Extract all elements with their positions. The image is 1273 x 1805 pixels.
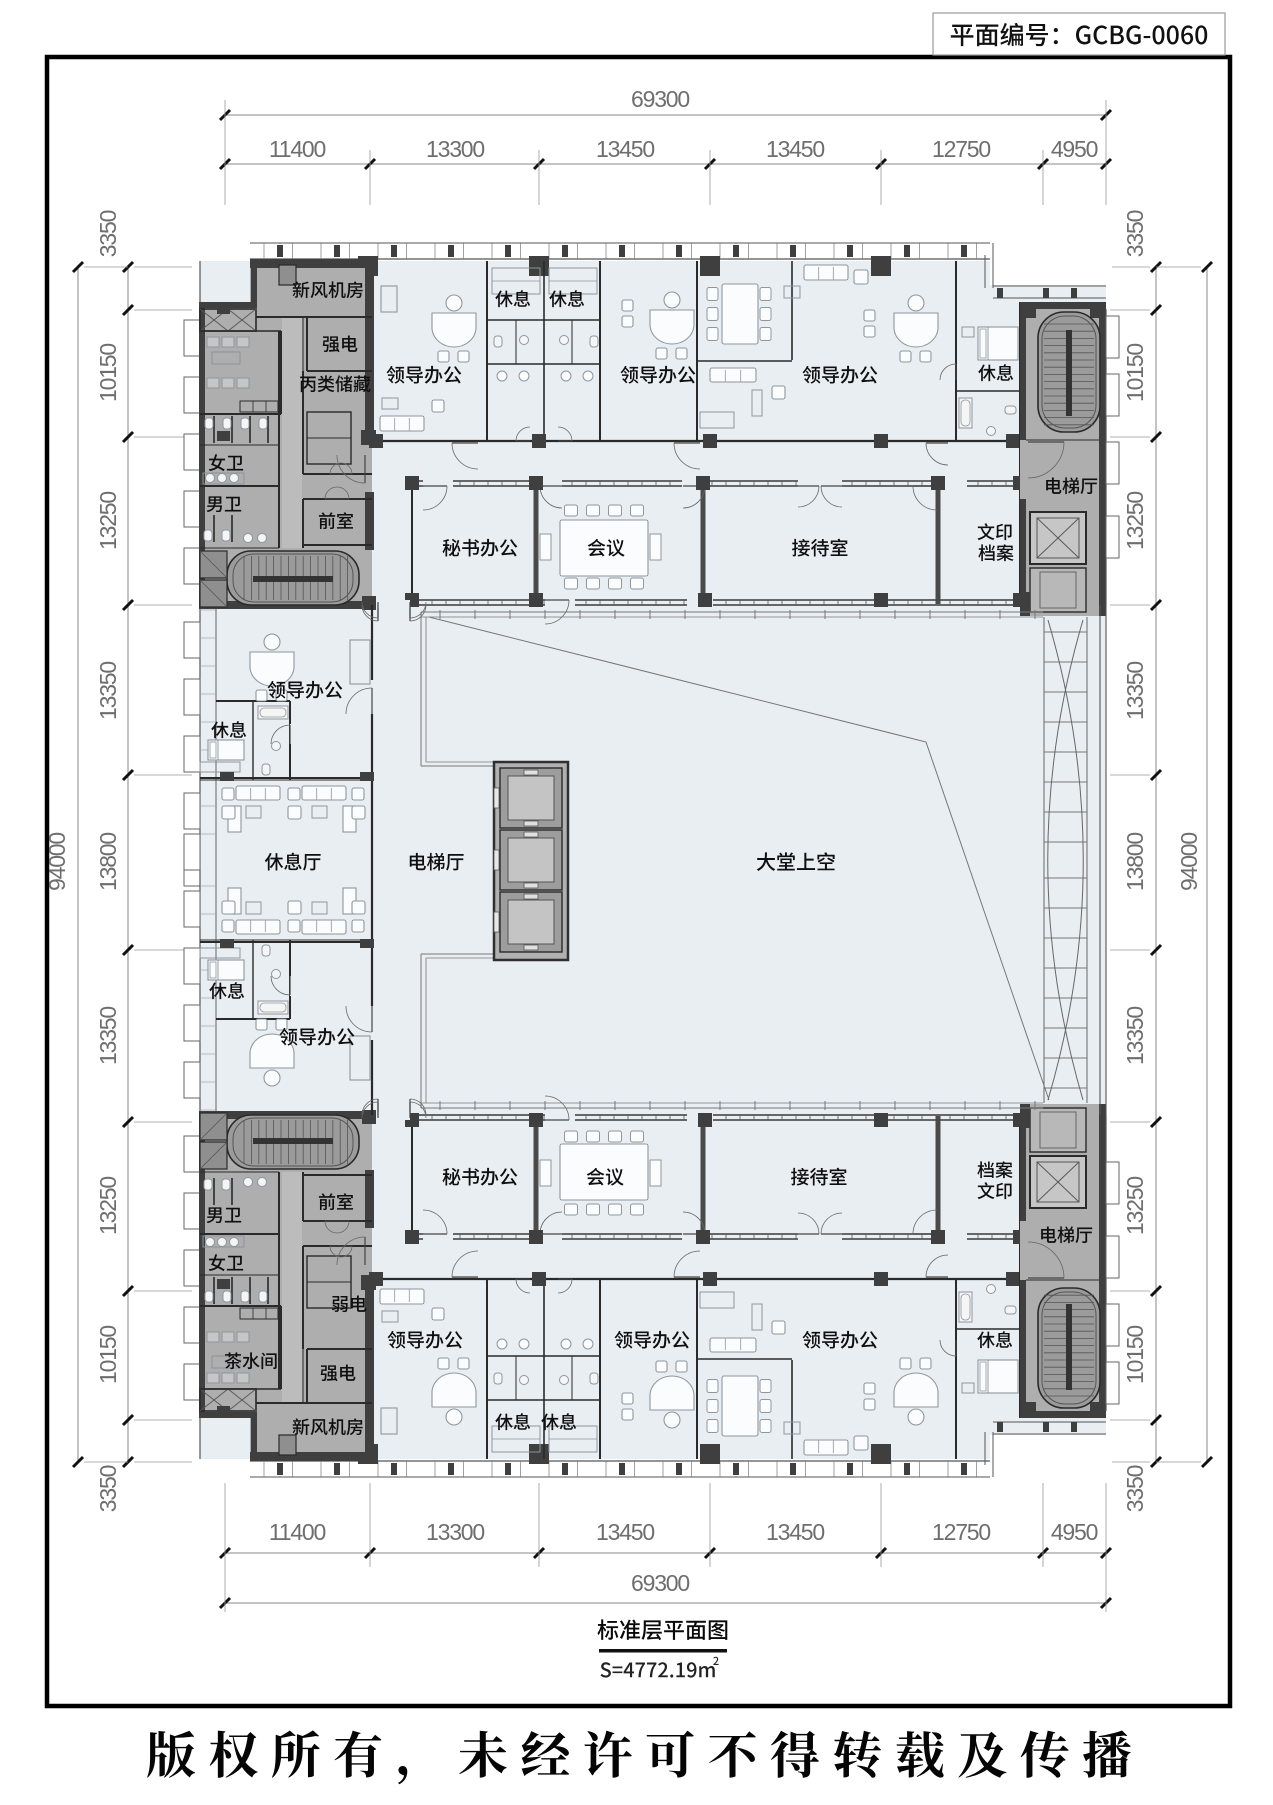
svg-text:13450: 13450 bbox=[766, 136, 824, 162]
svg-text:10150: 10150 bbox=[1122, 1326, 1148, 1384]
svg-text:69300: 69300 bbox=[631, 86, 689, 112]
svg-text:13300: 13300 bbox=[426, 136, 484, 162]
svg-text:12750: 12750 bbox=[932, 1519, 990, 1545]
svg-text:10150: 10150 bbox=[95, 1326, 121, 1384]
svg-text:10150: 10150 bbox=[1122, 344, 1148, 402]
svg-text:12750: 12750 bbox=[932, 136, 990, 162]
svg-text:13250: 13250 bbox=[95, 1177, 121, 1235]
svg-text:13800: 13800 bbox=[1122, 833, 1148, 891]
svg-text:3350: 3350 bbox=[95, 1465, 121, 1512]
svg-text:13350: 13350 bbox=[1122, 662, 1148, 720]
svg-text:4950: 4950 bbox=[1051, 136, 1098, 162]
svg-text:13250: 13250 bbox=[1122, 492, 1148, 550]
svg-text:13350: 13350 bbox=[95, 662, 121, 720]
svg-text:13250: 13250 bbox=[1122, 1177, 1148, 1235]
svg-text:13450: 13450 bbox=[766, 1519, 824, 1545]
svg-text:13800: 13800 bbox=[95, 833, 121, 891]
svg-text:11400: 11400 bbox=[269, 1519, 326, 1545]
svg-text:69300: 69300 bbox=[631, 1570, 689, 1596]
svg-text:10150: 10150 bbox=[95, 344, 121, 402]
svg-text:13450: 13450 bbox=[596, 1519, 654, 1545]
svg-text:94000: 94000 bbox=[1176, 833, 1202, 891]
svg-text:13350: 13350 bbox=[1122, 1007, 1148, 1065]
svg-text:3350: 3350 bbox=[95, 210, 121, 257]
svg-text:13250: 13250 bbox=[95, 492, 121, 550]
svg-text:4950: 4950 bbox=[1051, 1519, 1098, 1545]
svg-text:11400: 11400 bbox=[269, 136, 326, 162]
svg-text:13450: 13450 bbox=[596, 136, 654, 162]
svg-text:3350: 3350 bbox=[1122, 210, 1148, 257]
svg-text:94000: 94000 bbox=[44, 833, 70, 891]
svg-text:13350: 13350 bbox=[95, 1007, 121, 1065]
svg-text:3350: 3350 bbox=[1122, 1465, 1148, 1512]
svg-text:13300: 13300 bbox=[426, 1519, 484, 1545]
